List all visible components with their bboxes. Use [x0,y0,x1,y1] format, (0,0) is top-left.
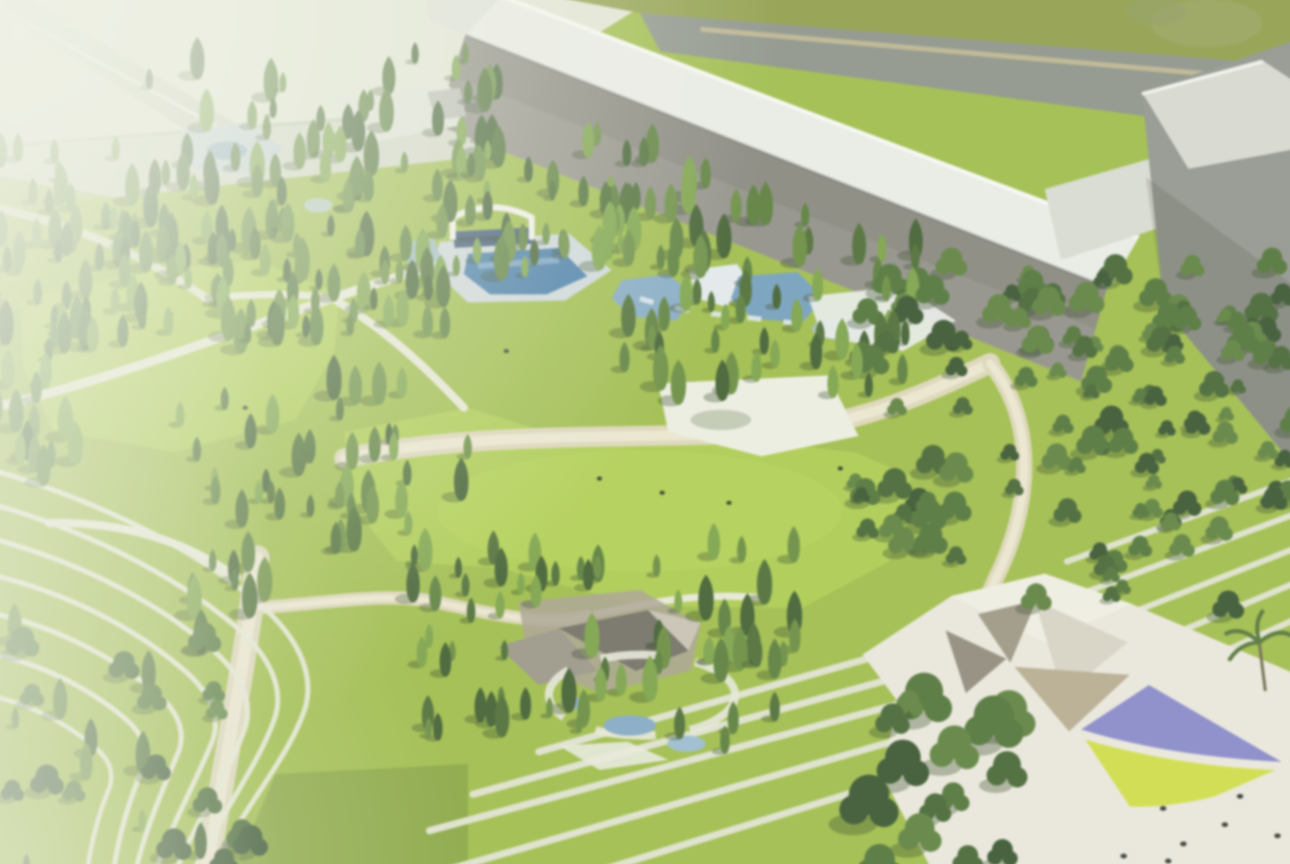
global-veil [0,0,1290,864]
park-aerial-rendering [0,0,1290,864]
haze-overlays [0,0,1290,864]
